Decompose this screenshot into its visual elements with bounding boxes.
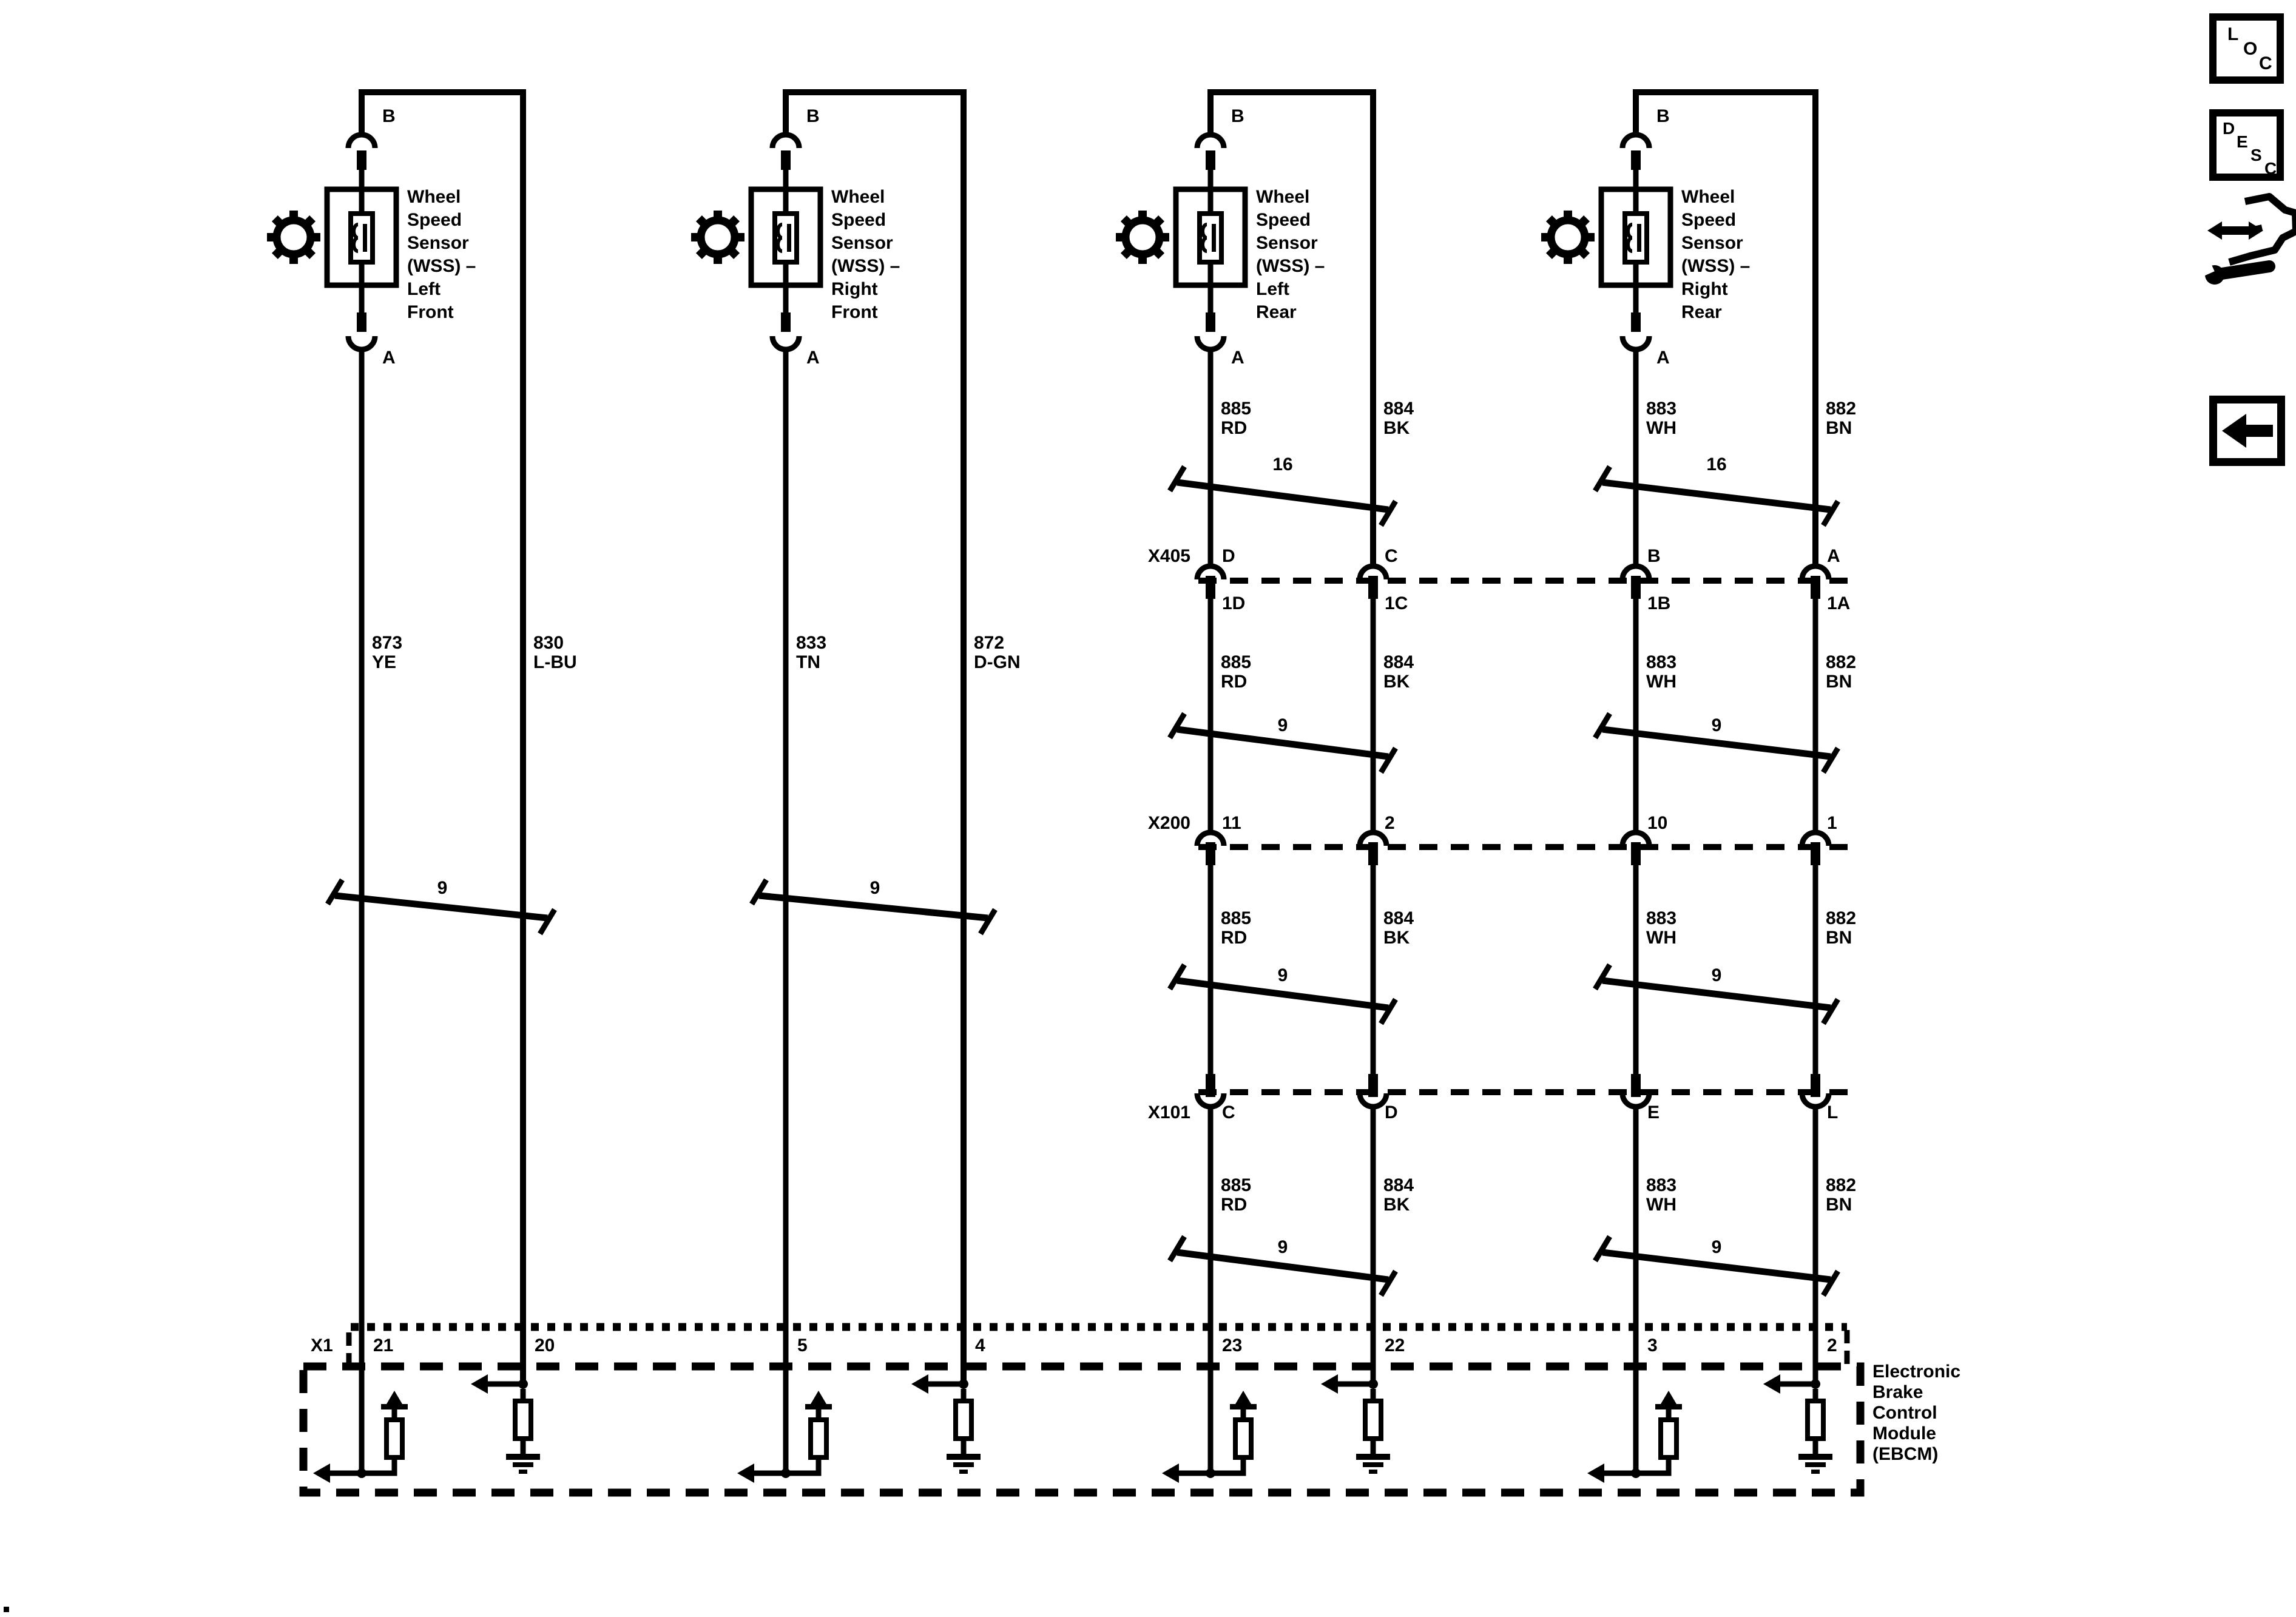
loc-letter: L	[2227, 24, 2238, 45]
terminal-b: B	[382, 107, 396, 126]
pin-label: 21	[373, 1336, 393, 1355]
pin-label: 1A	[1827, 594, 1850, 613]
pin-label: 5	[797, 1336, 808, 1355]
ebcm-label: Electronic Brake Control Module (EBCM)	[1872, 1362, 1960, 1465]
wire-label: 883 WH	[1646, 399, 1676, 438]
pin-label: C	[1385, 547, 1398, 566]
wire-label: 883 WH	[1646, 653, 1676, 692]
loc-letter: C	[2259, 53, 2272, 74]
wire-label-872-dgn: 872 D-GN	[974, 633, 1021, 672]
wire-label: 885 RD	[1221, 1176, 1251, 1215]
terminal-b: B	[1231, 107, 1244, 126]
twist-count: 9	[1689, 966, 1744, 985]
wire-label: 885 RD	[1221, 399, 1251, 438]
pin-label: L	[1827, 1103, 1838, 1122]
sensor-label-right-rear: Wheel Speed Sensor (WSS) – Right Rear	[1681, 186, 1750, 324]
twist-count: 16	[1255, 455, 1310, 474]
twist-count: 9	[1255, 1238, 1310, 1257]
back-button[interactable]	[2209, 396, 2285, 466]
twist-count: 16	[1689, 455, 1744, 474]
terminal-a: A	[806, 348, 820, 368]
wire-label: 884 BK	[1383, 1176, 1414, 1215]
sensor-label-right-front: Wheel Speed Sensor (WSS) – Right Front	[831, 186, 900, 324]
pin-label: 4	[975, 1336, 985, 1355]
pin-label: 3	[1647, 1336, 1658, 1355]
wire-label: 885 RD	[1221, 653, 1251, 692]
wiring-diagram-page: Wheel Speed Sensor (WSS) – Left Front Wh…	[0, 0, 2296, 1617]
desc-letter: E	[2237, 132, 2248, 152]
terminal-b: B	[1656, 107, 1670, 126]
wire-label: 882 BN	[1826, 1176, 1856, 1215]
wire-label-830-lbu: 830 L-BU	[533, 633, 577, 672]
wire-label: 884 BK	[1383, 399, 1414, 438]
connector-name-x101: X101	[1118, 1103, 1190, 1122]
pin-label: 1C	[1385, 594, 1408, 613]
twist-count: 9	[1255, 716, 1310, 735]
back-arrow-icon	[2217, 403, 2277, 458]
wire-label: 885 RD	[1221, 909, 1251, 948]
twist-count: 9	[1689, 716, 1744, 735]
desc-letter: S	[2250, 146, 2262, 165]
pin-label: 1B	[1647, 594, 1670, 613]
sensor-label-left-front: Wheel Speed Sensor (WSS) – Left Front	[407, 186, 476, 324]
wire-label: 882 BN	[1826, 399, 1856, 438]
terminal-a: A	[382, 348, 396, 368]
wires	[362, 170, 1815, 1473]
sensor-label-left-rear: Wheel Speed Sensor (WSS) – Left Rear	[1256, 186, 1325, 324]
twist-count: 9	[1255, 966, 1310, 985]
wire-label: 883 WH	[1646, 909, 1676, 948]
twisted-pair-symbols	[328, 467, 1838, 1295]
terminal-a: A	[1231, 348, 1244, 368]
desc-letter: D	[2223, 119, 2235, 138]
pin-label: 10	[1647, 814, 1667, 833]
wire-label: 884 BK	[1383, 653, 1414, 692]
pin-label: 1D	[1222, 594, 1245, 613]
wire-label: 883 WH	[1646, 1176, 1676, 1215]
pin-label: C	[1222, 1103, 1235, 1122]
pin-label: A	[1827, 547, 1840, 566]
desc-button[interactable]: D E S C	[2209, 109, 2284, 181]
pin-label: 1	[1827, 814, 1837, 833]
wrench-icon[interactable]	[2196, 197, 2296, 285]
wire-label: 882 BN	[1826, 653, 1856, 692]
loc-button[interactable]: L O C	[2209, 13, 2284, 84]
page-mark-dot	[4, 1607, 9, 1612]
desc-letter: C	[2264, 159, 2277, 178]
wire-label-873-ye: 873 YE	[372, 633, 402, 672]
twist-count: 9	[415, 879, 470, 898]
pin-label: 20	[535, 1336, 555, 1355]
connector-lines	[1198, 581, 1849, 1092]
pin-label: D	[1222, 547, 1235, 566]
wire-label: 884 BK	[1383, 909, 1414, 948]
twist-count: 9	[848, 879, 902, 898]
terminal-b: B	[806, 107, 820, 126]
pin-label: B	[1647, 547, 1661, 566]
connector-name-x1: X1	[311, 1336, 333, 1355]
connector-name-x405: X405	[1118, 547, 1190, 566]
connector-name-x200: X200	[1118, 814, 1190, 833]
pin-label: 22	[1385, 1336, 1405, 1355]
wire-label-833-tn: 833 TN	[796, 633, 826, 672]
pin-label: D	[1385, 1103, 1398, 1122]
loc-letter: O	[2243, 39, 2257, 59]
pin-label: E	[1647, 1103, 1660, 1122]
pin-label: 23	[1222, 1336, 1242, 1355]
pin-label: 11	[1222, 814, 1241, 833]
wire-label: 882 BN	[1826, 909, 1856, 948]
pin-label: 2	[1827, 1336, 1837, 1355]
pin-label: 2	[1385, 814, 1395, 833]
terminal-a: A	[1656, 348, 1670, 368]
twist-count: 9	[1689, 1238, 1744, 1257]
